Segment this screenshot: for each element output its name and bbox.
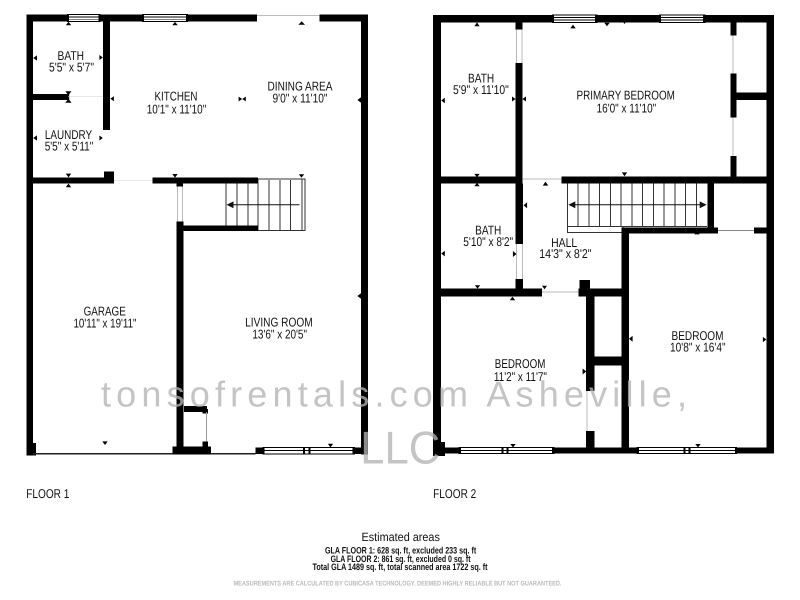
svg-text:5'10" x 8'2": 5'10" x 8'2": [463, 234, 513, 249]
svg-text:16'0" x 11'10": 16'0" x 11'10": [597, 100, 657, 115]
svg-text:FLOOR 2: FLOOR 2: [433, 486, 476, 501]
svg-text:9'0" x 11'10": 9'0" x 11'10": [273, 91, 328, 106]
svg-text:10'1" x 11'10": 10'1" x 11'10": [147, 102, 207, 117]
svg-text:10'11" x 19'11": 10'11" x 19'11": [74, 315, 137, 330]
svg-text:LLC: LLC: [360, 422, 440, 474]
svg-text:5'5" x 5'7": 5'5" x 5'7": [49, 60, 94, 75]
svg-text:Total GLA 1489 sq. ft, total s: Total GLA 1489 sq. ft, total scanned are…: [313, 561, 488, 572]
svg-text:14'3" x 8'2": 14'3" x 8'2": [539, 246, 591, 261]
svg-text:Estimated areas: Estimated areas: [362, 530, 440, 544]
svg-text:5'9" x 11'10": 5'9" x 11'10": [453, 82, 509, 97]
svg-text:5'5" x 5'11": 5'5" x 5'11": [45, 139, 94, 154]
svg-text:13'6" x 20'5": 13'6" x 20'5": [252, 326, 307, 341]
svg-text:10'8" x 16'4": 10'8" x 16'4": [670, 340, 726, 355]
svg-text:MEASUREMENTS ARE CALCULATED BY: MEASUREMENTS ARE CALCULATED BY CUBICASA …: [234, 581, 562, 588]
svg-text:tonsofrentals.com Asheville,: tonsofrentals.com Asheville,: [101, 374, 687, 415]
svg-text:FLOOR 1: FLOOR 1: [26, 486, 69, 501]
